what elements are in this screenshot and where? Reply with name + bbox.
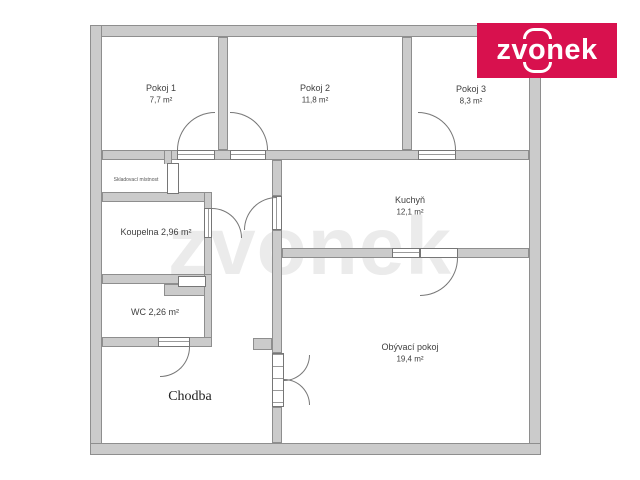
bell-arc-bottom-icon [523,62,552,73]
door-arc-pokoj1 [177,112,215,150]
wall-central-stub [253,338,272,350]
double-door-arc-top [284,355,310,381]
wall-pokoj2-pokoj3 [402,37,412,150]
door-arc-kitchen-living [420,258,458,296]
room-label-pokoj1: Pokoj 1 [146,83,176,93]
wall-central-mid [272,230,282,353]
wall-sklad-bottom [102,192,212,202]
door-jamb-pokoj2 [230,150,266,160]
room-label-wc: WC 2,26 m² [131,307,179,317]
room-area-obyvaci: 19,4 m² [396,355,423,364]
wall-wc-bottom [102,337,212,347]
wall-central-lower [272,407,282,443]
room-area-pokoj2: 11,8 m² [302,96,329,105]
logo-letter-o: o [528,36,546,65]
double-door-jamb-chodba-living [272,353,284,407]
door-jamb-pokoj3 [418,150,456,160]
room-label-sklad: Skladovací místnost [114,177,159,183]
zvonek-logo-wordmark: zvonek [496,36,597,65]
wall-outer-right [529,25,541,455]
bell-arc-top-icon [523,28,552,39]
room-area-pokoj1: 7,7 m² [150,96,173,105]
room-label-pokoj2: Pokoj 2 [300,83,330,93]
logo-letters-zv: zv [496,36,528,65]
door-jamb-kitchen-living-side [392,248,420,258]
zvonek-logo: zvonek [477,23,617,78]
door-leaf-kitchen-living [420,248,458,258]
room-area-pokoj3: 8,3 m² [460,97,483,106]
wc-shaft-niche [178,276,206,287]
room-label-obyvaci: Obývací pokoj [381,342,438,352]
room-label-pokoj3: Pokoj 3 [456,84,486,94]
wall-outer-bottom [90,443,541,455]
room-label-kuchyn: Kuchyň [395,195,425,205]
room-label-chodba: Chodba [168,389,212,405]
floorplan: zvonek Pokoj 1 7,7 m² Pokoj 2 11,8 m² Po… [0,0,640,480]
logo-letters-nek: nek [546,36,597,65]
door-leaf-sklad [167,163,179,194]
wall-central-upper [272,160,282,196]
door-jamb-wc [158,337,190,347]
door-arc-pokoj3 [418,112,456,150]
wall-pokoj1-pokoj2 [218,37,228,150]
wall-outer-top [90,25,541,37]
door-jamb-pokoj1 [177,150,215,160]
door-arc-pokoj2 [230,112,268,150]
door-jamb-koupelna [204,208,212,238]
door-arc-wc [160,347,190,377]
double-door-arc-bottom [284,379,310,405]
room-area-kuchyn: 12,1 m² [396,208,423,217]
wall-outer-left [90,25,102,455]
room-label-koupelna: Koupelna 2,96 m² [120,227,191,237]
